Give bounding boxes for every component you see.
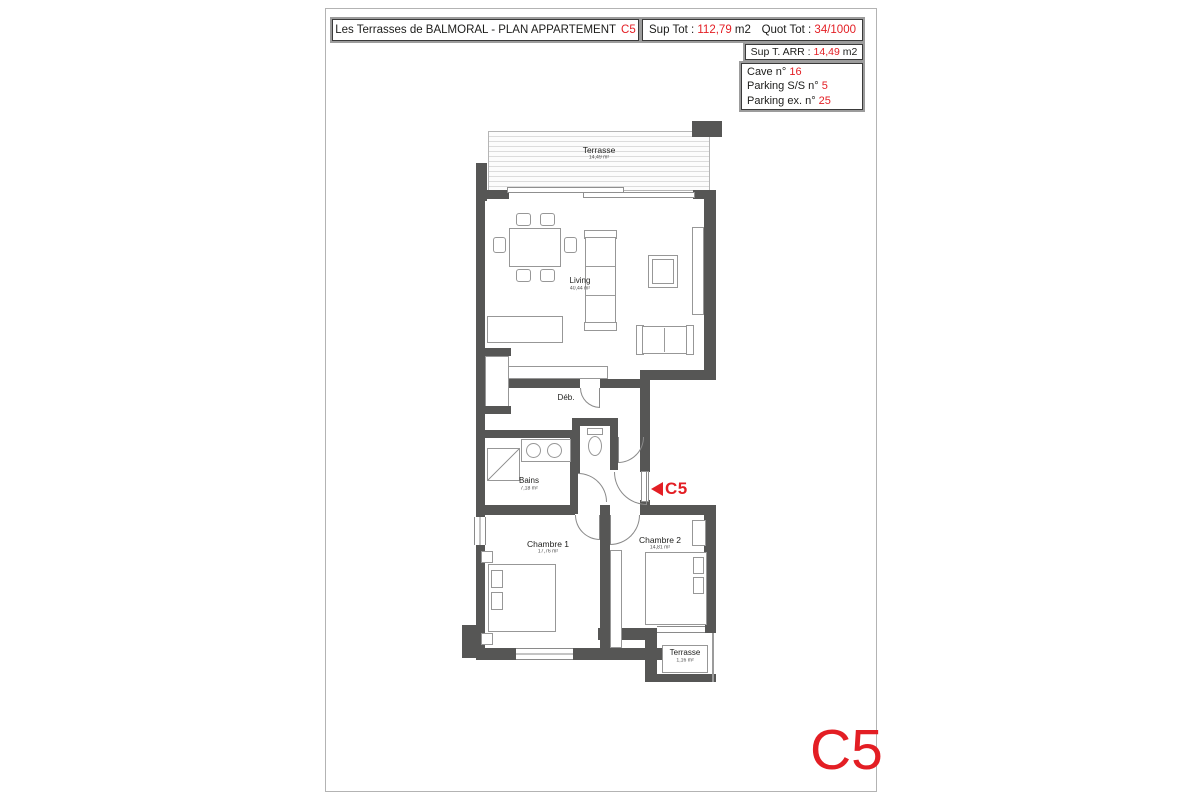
dining-chair: [516, 269, 531, 282]
sofa-cushion-line: [664, 328, 665, 352]
wall-segment: [570, 438, 578, 514]
sup-t-arr-unit: m2: [843, 46, 858, 58]
room-label-living: Living 40,44 m²: [550, 277, 610, 292]
surface-box: Sup Tot : 112,79 m2 Quot Tot : 34/1000: [642, 19, 863, 41]
dining-chair: [516, 213, 531, 226]
nightstand: [481, 551, 493, 563]
dining-chair: [564, 237, 577, 253]
parking-ex-number: 25: [819, 95, 831, 107]
sup-tot: Sup Tot : 112,79 m2: [649, 24, 751, 36]
unit-code-large: C5: [810, 722, 883, 779]
room-label-deb: Déb.: [546, 394, 586, 403]
cave-label: Cave n°: [747, 66, 786, 78]
annex-box: Cave n° 16 Parking S/S n° 5 Parking ex. …: [741, 63, 863, 110]
wall-segment: [476, 190, 485, 660]
wall-segment: [481, 505, 575, 515]
plan-title: Les Terrasses de BALMORAL - PLAN APPARTE…: [335, 24, 616, 36]
wall-segment: [600, 379, 645, 388]
terrace-surface-box: Sup T. ARR : 14,49 m2: [745, 44, 863, 60]
low-cabinet: [508, 366, 608, 379]
closet: [485, 356, 509, 408]
parking-ex-line: Parking ex. n° 25: [747, 94, 831, 109]
quot-tot-label: Quot Tot :: [762, 24, 812, 36]
coffee-table-inner: [652, 259, 674, 284]
room-label-chambre1: Chambre 1 17,76 m²: [518, 540, 578, 555]
dining-table: [509, 228, 561, 267]
wall-segment: [610, 418, 618, 470]
parking-ss-line: Parking S/S n° 5: [747, 79, 828, 94]
wall-segment: [485, 348, 511, 356]
closet: [692, 520, 706, 546]
pillow: [693, 557, 704, 574]
quot-tot: Quot Tot : 34/1000: [762, 24, 856, 36]
pillow: [491, 592, 503, 610]
entrance-unit-label: C5: [665, 479, 688, 499]
wall-segment: [704, 190, 716, 372]
window: [516, 648, 573, 660]
sup-tot-unit: m2: [735, 24, 751, 36]
wardrobe: [610, 550, 622, 648]
quot-tot-value: 34/1000: [814, 24, 856, 36]
pillow: [491, 570, 503, 588]
sofa-armrest: [584, 322, 617, 331]
floor-plan-page: Les Terrasses de BALMORAL - PLAN APPARTE…: [0, 0, 1200, 800]
wall-segment: [462, 625, 476, 658]
sink: [526, 443, 541, 458]
sideboard: [487, 316, 563, 343]
title-box: Les Terrasses de BALMORAL - PLAN APPARTE…: [332, 19, 639, 41]
parking-ss-number: 5: [822, 80, 828, 92]
sup-tot-value: 112,79: [697, 24, 731, 36]
sliding-door: [583, 192, 695, 198]
dining-chair: [540, 213, 555, 226]
plan-sheet: [325, 8, 877, 792]
terrace-edge: [712, 633, 714, 682]
sup-tot-label: Sup Tot :: [649, 24, 694, 36]
entrance-arrow-icon: [651, 482, 663, 496]
pillow: [693, 577, 704, 594]
room-label-bains: Bains 7,18 m²: [509, 477, 549, 492]
pillar: [692, 121, 722, 137]
parking-ex-label: Parking ex. n°: [747, 95, 816, 107]
toilet: [588, 436, 602, 456]
sofa-cushion-line: [586, 295, 615, 296]
sofa-cushion-line: [586, 266, 615, 267]
cave-number: 16: [789, 66, 801, 78]
wall-segment: [600, 505, 610, 650]
tv-cabinet: [692, 227, 704, 315]
wall-segment: [505, 379, 580, 388]
title-unit-code: C5: [621, 24, 636, 36]
parking-ss-label: Parking S/S n°: [747, 80, 819, 92]
dining-chair: [493, 237, 506, 253]
toilet-tank: [587, 428, 603, 435]
sup-t-arr-label: Sup T. ARR :: [751, 46, 811, 58]
cave-line: Cave n° 16: [747, 65, 802, 80]
sup-t-arr-value: 14,49: [814, 46, 840, 58]
window: [474, 517, 486, 545]
sofa-armrest: [686, 325, 694, 355]
wall-segment: [645, 370, 716, 380]
room-label-terrasse-top: Terrasse 14,49 m²: [559, 146, 639, 161]
wall-segment: [485, 406, 511, 414]
wall-segment: [481, 430, 578, 438]
wall-segment: [645, 674, 716, 682]
nightstand: [481, 633, 493, 645]
sink: [547, 443, 562, 458]
room-label-terrasse-bottom: Terrasse 1,16 m²: [662, 645, 708, 673]
room-label-chambre2: Chambre 2 14,81 m²: [630, 536, 690, 551]
